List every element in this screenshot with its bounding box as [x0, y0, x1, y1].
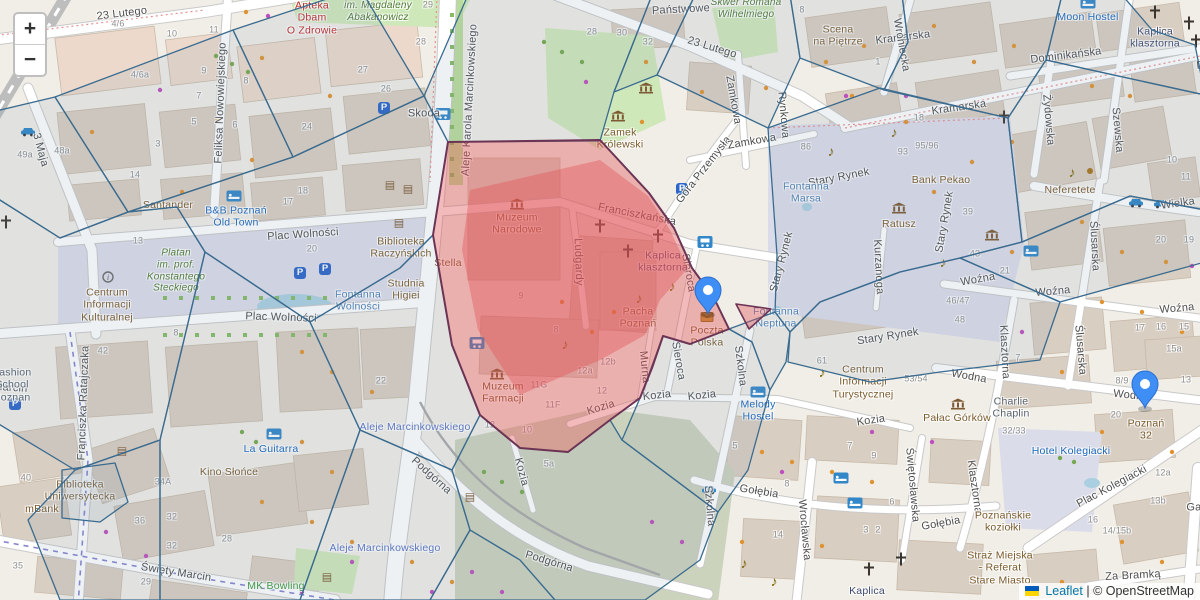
openstreetmap-link[interactable]: © OpenStreetMap	[1093, 584, 1194, 598]
zoom-in-button[interactable]: +	[15, 14, 45, 45]
markers-layer	[0, 0, 1200, 600]
attribution-separator-glyph: |	[1086, 584, 1089, 598]
map-canvas[interactable]: ♪♪♪♪♪♪♪♪♪♪PPPPPi▤▤▤▤▤▤ 23 Lutego23 Luteg…	[0, 0, 1200, 600]
marker-pin-dot	[1140, 379, 1150, 389]
leaflet-link[interactable]: Leaflet	[1045, 584, 1083, 598]
marker-pin-icon[interactable]	[1132, 371, 1158, 408]
marker-pin-icon[interactable]	[695, 277, 721, 314]
ukraine-flag-icon	[1025, 586, 1039, 596]
attribution-bar: Leaflet | © OpenStreetMap	[1019, 583, 1200, 600]
marker-pin-dot	[703, 285, 713, 295]
marker-poczta-polska[interactable]	[695, 277, 721, 318]
zoom-control: + −	[13, 12, 47, 77]
marker-poznan-32[interactable]	[1132, 371, 1158, 412]
zoom-out-button[interactable]: −	[15, 45, 45, 75]
